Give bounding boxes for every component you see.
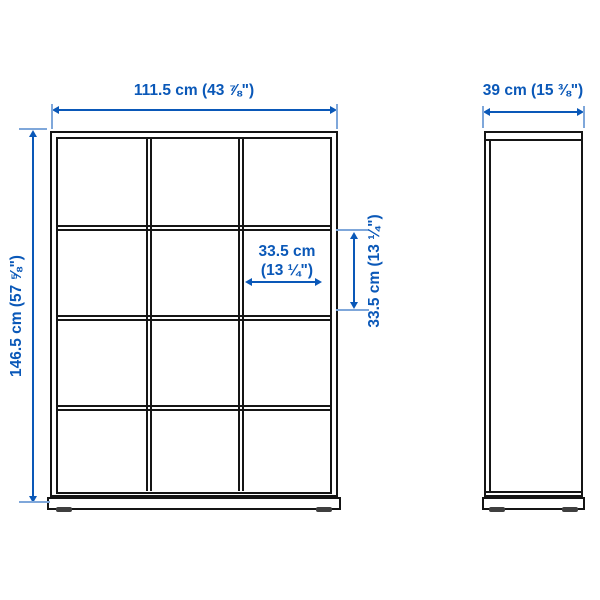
side-right-foot [562, 507, 578, 512]
side-view [484, 131, 583, 497]
grid-divider-horizontal-2b [57, 319, 331, 321]
grid-divider-horizontal-3b [57, 409, 331, 411]
cell-width-arrow [252, 281, 315, 283]
overall-depth-arrow [490, 111, 577, 113]
side-front-edge-line [489, 141, 491, 491]
overall-height-extension-top [19, 128, 47, 130]
cell-height-label: 33.5 cm (13 ¼") [366, 214, 384, 327]
front-base-plinth [47, 497, 341, 510]
grid-divider-horizontal-1a [57, 225, 331, 227]
front-view [50, 131, 338, 497]
overall-width-label: 111.5 cm (43 ⅞") [50, 82, 338, 100]
cell-height-arrow [353, 239, 355, 302]
grid-divider-horizontal-3a [57, 405, 331, 407]
overall-height-arrow [32, 137, 34, 496]
cell-width-value-cm: 33.5 cm [243, 242, 331, 261]
overall-depth-extension-right [583, 106, 585, 128]
cell-width-label: 33.5 cm (13 ¼") [243, 242, 331, 280]
front-right-foot [316, 507, 332, 512]
grid-divider-horizontal-2a [57, 315, 331, 317]
overall-height-extension-bottom [19, 501, 50, 503]
overall-width-arrow [59, 109, 330, 111]
overall-depth-extension-left [482, 106, 484, 128]
overall-height-label: 146.5 cm (57 ⅝") [8, 255, 26, 377]
front-left-foot [56, 507, 72, 512]
overall-width-extension-left [51, 104, 53, 129]
overall-depth-label: 39 cm (15 ⅜") [468, 82, 598, 100]
side-left-foot [489, 507, 505, 512]
side-bottom-board-line [486, 491, 581, 493]
overall-width-extension-right [336, 104, 338, 129]
product-dimension-diagram: 111.5 cm (43 ⅞") 39 cm (15 ⅜") 146.5 cm … [0, 0, 600, 600]
cell-height-extension-bottom [336, 309, 369, 311]
side-top-board-line [486, 139, 581, 141]
cell-height-extension-top [336, 229, 369, 231]
grid-divider-horizontal-1b [57, 229, 331, 231]
